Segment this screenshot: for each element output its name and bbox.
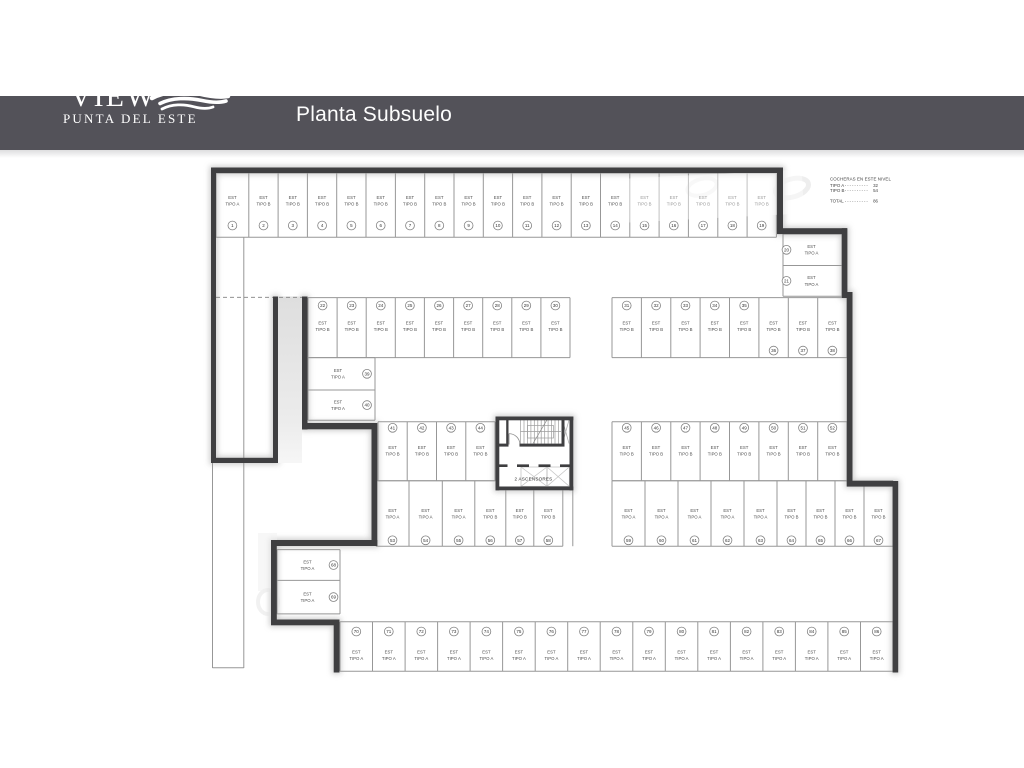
svg-text:EST: EST [828, 320, 837, 325]
svg-text:TIPO B: TIPO B [483, 514, 497, 519]
svg-text:72: 72 [419, 629, 425, 634]
svg-text:41: 41 [390, 425, 396, 430]
svg-text:48: 48 [712, 425, 718, 430]
svg-text:TIPO B: TIPO B [796, 327, 810, 332]
svg-text:16: 16 [671, 223, 677, 228]
svg-text:EST: EST [711, 445, 720, 450]
svg-text:EST: EST [840, 649, 849, 654]
svg-text:EST: EST [303, 592, 312, 597]
svg-text:TIPO B: TIPO B [316, 327, 330, 332]
svg-text:20: 20 [784, 247, 790, 252]
svg-text:TIPO B: TIPO B [520, 202, 534, 207]
svg-text:EST: EST [551, 320, 560, 325]
svg-text:TIPO B: TIPO B [444, 451, 458, 456]
svg-text:61: 61 [692, 538, 698, 543]
svg-text:54: 54 [873, 188, 878, 193]
svg-text:EST: EST [377, 195, 386, 200]
svg-text:TIPO A: TIPO A [642, 656, 656, 661]
svg-text:EST: EST [515, 649, 524, 654]
svg-text:37: 37 [800, 348, 806, 353]
svg-text:65: 65 [818, 538, 824, 543]
svg-text:EST: EST [523, 195, 532, 200]
svg-text:78: 78 [614, 629, 620, 634]
svg-text:EST: EST [334, 368, 343, 373]
svg-text:77: 77 [581, 629, 587, 634]
svg-text:TIPO B: TIPO B [256, 202, 270, 207]
svg-text:EST: EST [494, 195, 503, 200]
svg-text:EST: EST [454, 508, 463, 513]
svg-text:TIPO A: TIPO A [610, 656, 624, 661]
svg-text:EST: EST [807, 275, 816, 280]
svg-text:TIPO A: TIPO A [382, 656, 396, 661]
svg-text:TOTAL: TOTAL [830, 199, 844, 204]
svg-text:44: 44 [478, 425, 484, 430]
svg-text:68: 68 [331, 563, 337, 568]
svg-text:17: 17 [701, 223, 707, 228]
svg-text:TIPO B: TIPO B [473, 451, 487, 456]
svg-text:75: 75 [516, 629, 522, 634]
svg-text:EST: EST [377, 320, 386, 325]
svg-text:EST: EST [612, 649, 621, 654]
svg-text:79: 79 [646, 629, 652, 634]
svg-text:55: 55 [456, 538, 462, 543]
svg-text:EST: EST [388, 445, 397, 450]
svg-text:TIPO B: TIPO B [708, 327, 722, 332]
svg-text:EST: EST [611, 195, 620, 200]
svg-text:TIPO A: TIPO A [577, 656, 591, 661]
svg-text:2 ASCENSORES: 2 ASCENSORES [515, 477, 553, 482]
svg-text:TIPO B: TIPO B [830, 188, 844, 193]
svg-text:TIPO B: TIPO B [541, 514, 555, 519]
svg-text:83: 83 [777, 629, 783, 634]
svg-text:EST: EST [769, 445, 778, 450]
svg-text:EST: EST [580, 649, 589, 654]
svg-text:EST: EST [352, 649, 361, 654]
svg-text:47: 47 [683, 425, 689, 430]
svg-text:82: 82 [744, 629, 750, 634]
svg-text:EST: EST [421, 508, 430, 513]
svg-text:TIPO B: TIPO B [737, 451, 751, 456]
svg-text:EST: EST [547, 649, 556, 654]
svg-text:29: 29 [524, 303, 530, 308]
svg-text:TIPO B: TIPO B [548, 327, 562, 332]
svg-text:TIPO B: TIPO B [415, 451, 429, 456]
svg-text:63: 63 [758, 538, 764, 543]
svg-text:53: 53 [390, 538, 396, 543]
svg-text:13: 13 [583, 223, 589, 228]
svg-text:86: 86 [873, 199, 878, 204]
svg-text:EST: EST [799, 320, 808, 325]
svg-text:TIPO A: TIPO A [805, 251, 819, 256]
svg-text:TIPO A: TIPO A [837, 656, 851, 661]
svg-text:TIPO A: TIPO A [622, 514, 636, 519]
svg-text:EST: EST [522, 320, 531, 325]
svg-text:EST: EST [447, 445, 456, 450]
svg-text:46: 46 [654, 425, 660, 430]
svg-text:19: 19 [759, 223, 765, 228]
svg-text:TIPO A: TIPO A [512, 656, 526, 661]
svg-text:71: 71 [386, 629, 392, 634]
svg-text:EST: EST [756, 508, 765, 513]
svg-text:73: 73 [451, 629, 457, 634]
svg-text:23: 23 [349, 303, 355, 308]
svg-text:EST: EST [775, 649, 784, 654]
svg-text:56: 56 [488, 538, 494, 543]
svg-text:EST: EST [742, 649, 751, 654]
svg-text:TIPO B: TIPO B [825, 451, 839, 456]
svg-text:45: 45 [624, 425, 630, 430]
svg-text:EST: EST [464, 195, 473, 200]
svg-text:TIPO B: TIPO B [678, 327, 692, 332]
svg-text:EST: EST [486, 508, 495, 513]
svg-text:TIPO A: TIPO A [655, 514, 669, 519]
svg-text:TIPO B: TIPO B [620, 327, 634, 332]
svg-text:EST: EST [303, 559, 312, 564]
svg-text:TIPO A: TIPO A [754, 514, 768, 519]
svg-text:76: 76 [549, 629, 555, 634]
svg-text:60: 60 [659, 538, 665, 543]
svg-text:EST: EST [677, 649, 686, 654]
svg-text:TIPO A: TIPO A [331, 406, 345, 411]
svg-text:EST: EST [623, 320, 632, 325]
svg-text:TIPO B: TIPO B [513, 514, 527, 519]
svg-text:TIPO B: TIPO B [649, 451, 663, 456]
svg-text:TIPO A: TIPO A [805, 282, 819, 287]
svg-text:62: 62 [725, 538, 731, 543]
svg-text:TIPO B: TIPO B [374, 202, 388, 207]
svg-text:66: 66 [847, 538, 853, 543]
svg-text:24: 24 [378, 303, 384, 308]
svg-text:TIPO B: TIPO B [462, 202, 476, 207]
svg-text:TIPO B: TIPO B [796, 451, 810, 456]
svg-text:TIPO B: TIPO B [767, 327, 781, 332]
svg-text:34: 34 [712, 303, 718, 308]
svg-text:49: 49 [742, 425, 748, 430]
svg-text:EST: EST [681, 320, 690, 325]
svg-text:EST: EST [334, 400, 343, 405]
svg-text:TIPO B: TIPO B [519, 327, 533, 332]
svg-text:EST: EST [406, 320, 415, 325]
svg-text:74: 74 [484, 629, 490, 634]
svg-text:EST: EST [228, 195, 237, 200]
svg-text:43: 43 [449, 425, 455, 430]
svg-text:EST: EST [711, 320, 720, 325]
svg-text:EST: EST [544, 508, 553, 513]
svg-text:TIPO B: TIPO B [784, 514, 798, 519]
svg-text:69: 69 [331, 595, 337, 600]
svg-text:EST: EST [681, 445, 690, 450]
svg-text:TIPO B: TIPO B [737, 327, 751, 332]
svg-text:TIPO B: TIPO B [490, 327, 504, 332]
svg-text:TIPO A: TIPO A [544, 656, 558, 661]
svg-text:EST: EST [652, 320, 661, 325]
svg-text:TIPO B: TIPO B [344, 202, 358, 207]
svg-text:EST: EST [552, 195, 561, 200]
svg-text:TIPO B: TIPO B [842, 514, 856, 519]
svg-text:TIPO B: TIPO B [403, 327, 417, 332]
svg-text:TIPO A: TIPO A [688, 514, 702, 519]
svg-text:11: 11 [525, 223, 530, 228]
svg-text:52: 52 [830, 425, 836, 430]
svg-text:14: 14 [613, 223, 619, 228]
svg-text:TIPO B: TIPO B [461, 327, 475, 332]
svg-text:80: 80 [679, 629, 685, 634]
svg-text:EST: EST [289, 195, 298, 200]
svg-text:TIPO B: TIPO B [649, 327, 663, 332]
svg-text:15: 15 [642, 223, 648, 228]
svg-text:EST: EST [464, 320, 473, 325]
svg-text:EST: EST [623, 445, 632, 450]
svg-text:50: 50 [771, 425, 777, 430]
svg-text:59: 59 [626, 538, 632, 543]
svg-text:TIPO B: TIPO B [403, 202, 417, 207]
svg-text:TIPO A: TIPO A [721, 514, 735, 519]
svg-text:EST: EST [624, 508, 633, 513]
svg-text:EST: EST [318, 195, 327, 200]
svg-text:EST: EST [348, 320, 357, 325]
svg-text:TIPO B: TIPO B [345, 327, 359, 332]
svg-text:EST: EST [406, 195, 415, 200]
svg-text:67: 67 [876, 538, 882, 543]
svg-text:84: 84 [809, 629, 815, 634]
svg-text:33: 33 [683, 303, 689, 308]
svg-text:TIPO A: TIPO A [349, 656, 363, 661]
svg-text:TIPO A: TIPO A [675, 656, 689, 661]
svg-text:TIPO A: TIPO A [301, 598, 315, 603]
svg-text:EST: EST [450, 649, 459, 654]
svg-text:EST: EST [799, 445, 808, 450]
svg-text:27: 27 [466, 303, 472, 308]
svg-text:TIPO A: TIPO A [225, 202, 239, 207]
svg-text:57: 57 [517, 538, 523, 543]
svg-text:EST: EST [417, 649, 426, 654]
svg-text:EST: EST [769, 320, 778, 325]
svg-text:TIPO B: TIPO B [608, 202, 622, 207]
svg-text:TIPO B: TIPO B [708, 451, 722, 456]
svg-text:TIPO A: TIPO A [452, 514, 466, 519]
svg-text:TIPO B: TIPO B [871, 514, 885, 519]
svg-text:EST: EST [807, 244, 816, 249]
svg-text:EST: EST [645, 649, 654, 654]
svg-text:EST: EST [435, 320, 444, 325]
svg-text:EST: EST [845, 508, 854, 513]
svg-text:21: 21 [784, 278, 790, 283]
svg-text:12: 12 [554, 223, 560, 228]
svg-text:39: 39 [364, 371, 370, 376]
svg-text:54: 54 [423, 538, 429, 543]
svg-text:35: 35 [742, 303, 748, 308]
svg-text:TIPO A: TIPO A [331, 375, 345, 380]
svg-text:TIPO B: TIPO B [374, 327, 388, 332]
svg-text:32: 32 [654, 303, 660, 308]
svg-text:TIPO A: TIPO A [772, 656, 786, 661]
svg-text:22: 22 [320, 303, 326, 308]
svg-text:TIPO B: TIPO B [678, 451, 692, 456]
svg-text:EST: EST [435, 195, 444, 200]
svg-text:TIPO A: TIPO A [740, 656, 754, 661]
svg-text:EST: EST [740, 445, 749, 450]
svg-text:EST: EST [828, 445, 837, 450]
svg-text:86: 86 [874, 629, 880, 634]
svg-text:TIPO B: TIPO B [432, 202, 446, 207]
svg-text:TIPO B: TIPO B [620, 451, 634, 456]
svg-text:TIPO B: TIPO B [767, 451, 781, 456]
svg-text:TIPO B: TIPO B [315, 202, 329, 207]
svg-text:TIPO B: TIPO B [286, 202, 300, 207]
svg-text:EST: EST [388, 508, 397, 513]
svg-text:EST: EST [493, 320, 502, 325]
svg-text:EST: EST [873, 649, 882, 654]
svg-text:TIPO A: TIPO A [479, 656, 493, 661]
svg-text:EST: EST [710, 649, 719, 654]
svg-text:EST: EST [787, 508, 796, 513]
svg-text:TIPO B: TIPO B [550, 202, 564, 207]
svg-text:51: 51 [800, 425, 806, 430]
svg-text:38: 38 [830, 348, 836, 353]
svg-text:EST: EST [582, 195, 591, 200]
svg-text:EST: EST [347, 195, 356, 200]
svg-text:TIPO A: TIPO A [414, 656, 428, 661]
svg-text:TIPO A: TIPO A [870, 656, 884, 661]
svg-text:EST: EST [690, 508, 699, 513]
svg-text:31: 31 [624, 303, 630, 308]
svg-text:25: 25 [407, 303, 413, 308]
svg-text:EST: EST [476, 445, 485, 450]
svg-text:EST: EST [723, 508, 732, 513]
svg-text:EST: EST [259, 195, 268, 200]
svg-text:TIPO B: TIPO B [813, 514, 827, 519]
svg-text:81: 81 [712, 629, 718, 634]
svg-text:EST: EST [516, 508, 525, 513]
svg-text:COCHERAS EN ESTE NIVEL: COCHERAS EN ESTE NIVEL [830, 177, 891, 182]
svg-text:EST: EST [418, 445, 427, 450]
svg-text:58: 58 [546, 538, 552, 543]
svg-text:26: 26 [436, 303, 442, 308]
svg-text:TIPO A: TIPO A [419, 514, 433, 519]
svg-text:EST: EST [657, 508, 666, 513]
svg-text:EST: EST [652, 445, 661, 450]
svg-text:85: 85 [842, 629, 848, 634]
svg-text:TIPO A: TIPO A [707, 656, 721, 661]
svg-text:TIPO A: TIPO A [386, 514, 400, 519]
svg-text:TIPO B: TIPO B [432, 327, 446, 332]
svg-text:EST: EST [740, 320, 749, 325]
svg-text:40: 40 [364, 403, 370, 408]
svg-text:18: 18 [730, 223, 736, 228]
svg-text:TIPO B: TIPO B [386, 451, 400, 456]
svg-text:TIPO B: TIPO B [491, 202, 505, 207]
svg-text:TIPO B: TIPO B [579, 202, 593, 207]
svg-text:EST: EST [385, 649, 394, 654]
svg-text:EST: EST [816, 508, 825, 513]
svg-text:36: 36 [771, 348, 777, 353]
svg-text:70: 70 [354, 629, 360, 634]
svg-text:10: 10 [495, 223, 501, 228]
svg-text:TIPO B: TIPO B [825, 327, 839, 332]
svg-text:30: 30 [553, 303, 559, 308]
svg-text:28: 28 [495, 303, 501, 308]
svg-text:EST: EST [808, 649, 817, 654]
svg-text:EST: EST [482, 649, 491, 654]
svg-text:42: 42 [419, 425, 425, 430]
svg-text:TIPO A: TIPO A [447, 656, 461, 661]
svg-text:EST: EST [318, 320, 327, 325]
svg-text:TIPO A: TIPO A [301, 566, 315, 571]
svg-text:TIPO A: TIPO A [805, 656, 819, 661]
svg-text:64: 64 [789, 538, 795, 543]
svg-text:EST: EST [874, 508, 883, 513]
